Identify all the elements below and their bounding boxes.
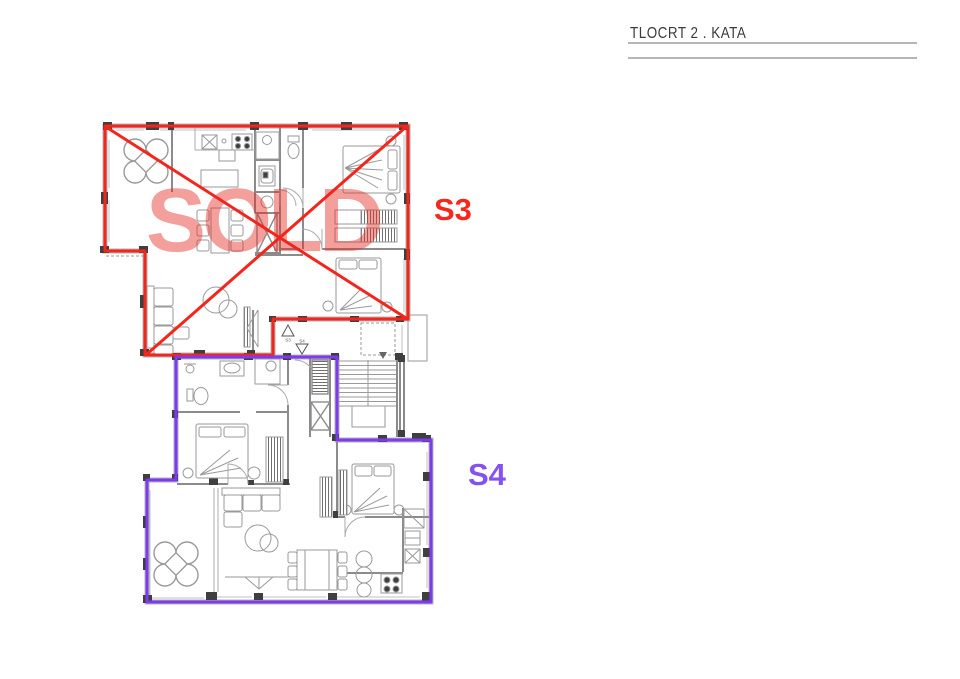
stairwell — [339, 360, 396, 427]
shaft-hatch — [312, 360, 328, 394]
floor-plan-drawing: S3 S4 — [0, 0, 960, 679]
title-rules — [628, 43, 917, 58]
s4-hall-wardrobe — [320, 477, 332, 517]
s4-terrace-table — [154, 542, 198, 586]
s4-bathroom — [184, 359, 280, 405]
s4-entry-triangle-icon — [296, 344, 308, 354]
s4-bedroom-2 — [339, 464, 404, 515]
sold-overlay: SOLD — [146, 176, 378, 266]
floor-plan-page: S3 S4 — [0, 0, 960, 679]
s3-entry-triangle-icon — [282, 325, 294, 336]
s4-living-room — [222, 488, 293, 589]
entry-vestibule — [408, 315, 427, 361]
s4-bedroom-1 — [183, 424, 283, 482]
s4-entry-label: S4 — [299, 339, 305, 344]
s3-living-room — [147, 286, 258, 354]
s4-label: S4 — [468, 459, 506, 490]
elevator — [311, 360, 330, 430]
s3-entry-label: S3 — [285, 338, 291, 343]
page-title: TLOCRT 2 . KATA — [630, 26, 746, 42]
s3-label: S3 — [434, 194, 472, 225]
